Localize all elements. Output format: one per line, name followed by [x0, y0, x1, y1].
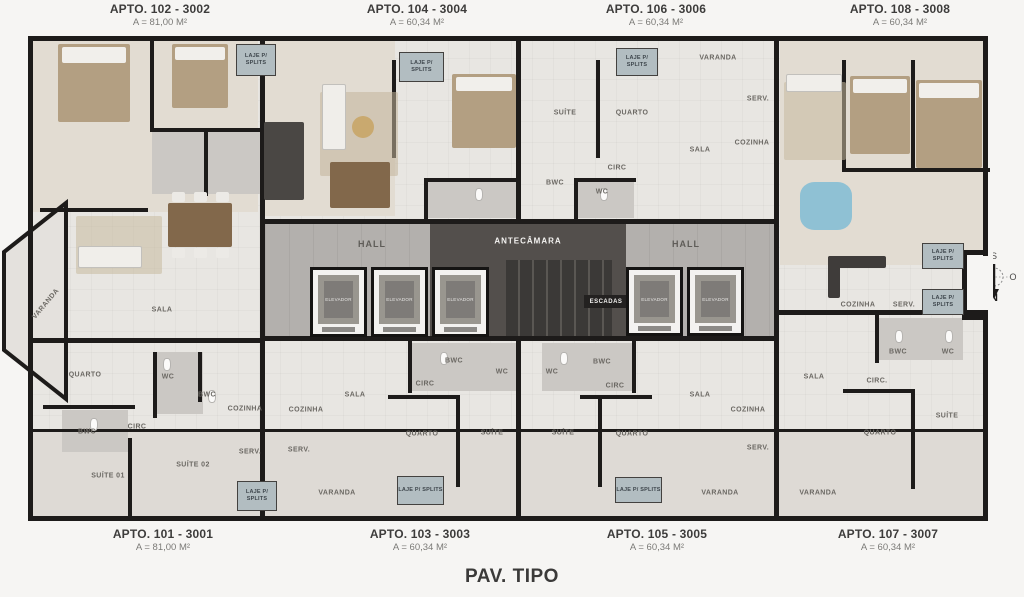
wall — [28, 516, 988, 521]
apartment-name: APTO. 104 - 3004 — [367, 2, 467, 16]
elevator-door — [699, 326, 732, 331]
wall — [456, 395, 460, 487]
wall — [843, 389, 915, 393]
furniture — [853, 79, 907, 93]
apartment-name: APTO. 102 - 3002 — [110, 2, 210, 16]
elevator-cab-inner: ELEVADOR — [385, 281, 414, 318]
room-label-cozinha: COZINHA — [735, 140, 770, 147]
room-label-circ: CIRC — [128, 424, 147, 431]
elevator-label: ELEVADOR — [641, 297, 668, 302]
room-label-serv-: SERV. — [747, 445, 769, 452]
furniture — [919, 83, 979, 98]
compass-o: O — [1009, 272, 1016, 282]
room-label-quarto: QUARTO — [616, 431, 649, 438]
furniture — [78, 246, 142, 268]
apartment-area: A = 81,00 M² — [113, 542, 213, 553]
wall — [580, 395, 652, 399]
wall — [28, 36, 988, 41]
furniture — [784, 82, 846, 160]
apartment-caption-bottom: APTO. 101 - 3001A = 81,00 M² — [113, 527, 213, 553]
furniture — [352, 116, 374, 138]
apartment-name: APTO. 108 - 3008 — [850, 2, 950, 16]
wall — [983, 314, 988, 521]
room-label-cozinha: COZINHA — [289, 407, 324, 414]
wall — [40, 208, 148, 212]
laje-splits-box: LAJE P/ SPLITS — [237, 481, 277, 511]
apartment-caption-top: APTO. 102 - 3002A = 81,00 M² — [110, 2, 210, 28]
wall — [596, 60, 600, 158]
apartment-area: A = 60,34 M² — [606, 17, 706, 28]
apartment-name: APTO. 105 - 3005 — [607, 527, 707, 541]
room-label-serv-: SERV. — [747, 96, 769, 103]
wall — [962, 250, 988, 255]
elevator: ELEVADOR — [310, 267, 367, 337]
apartment-caption-top: APTO. 104 - 3004A = 60,34 M² — [367, 2, 467, 28]
room-label-su-te: SUÍTE — [936, 413, 959, 420]
furniture — [456, 77, 512, 91]
elevator-cab-inner: ELEVADOR — [446, 281, 475, 318]
furniture — [62, 47, 126, 63]
apartment-name: APTO. 103 - 3003 — [370, 527, 470, 541]
room-label-circ: CIRC — [416, 381, 435, 388]
wall — [516, 36, 521, 223]
room-label-su-te-01: SUÍTE 01 — [91, 473, 125, 480]
wall — [983, 36, 988, 256]
wall — [424, 178, 520, 182]
furniture — [330, 162, 390, 208]
wall — [911, 60, 915, 172]
room-label-quarto: QUARTO — [864, 430, 897, 437]
room-label-su-te: SUÍTE — [481, 430, 504, 437]
room-label-varanda: VARANDA — [799, 490, 836, 497]
room-label-sala: SALA — [690, 147, 711, 154]
room-label-sala: SALA — [345, 392, 366, 399]
apartment-area: A = 60,34 M² — [838, 542, 938, 553]
elevator-door — [444, 327, 477, 332]
room-label-bwc: BWC — [78, 429, 96, 436]
bathroom-fixture — [945, 330, 953, 343]
varanda-strip — [30, 430, 986, 516]
room-label-bwc: BWC — [546, 180, 564, 187]
furniture — [786, 74, 842, 92]
wall — [260, 219, 779, 224]
room-label-quarto: QUARTO — [406, 431, 439, 438]
wall — [30, 429, 986, 432]
wall — [842, 168, 990, 172]
room-label-varanda: VARANDA — [699, 55, 736, 62]
room-label-circ-: CIRC. — [866, 378, 887, 385]
room-label-sala: SALA — [804, 374, 825, 381]
escadas-label: ESCADAS — [590, 299, 623, 305]
apartment-caption-bottom: APTO. 105 - 3005A = 60,34 M² — [607, 527, 707, 553]
room-label-circ: CIRC — [608, 165, 627, 172]
apartment-caption-bottom: APTO. 103 - 3003A = 60,34 M² — [370, 527, 470, 553]
apartment-caption-top: APTO. 106 - 3006A = 60,34 M² — [606, 2, 706, 28]
room-label-cozinha: COZINHA — [228, 406, 263, 413]
room-label-cozinha: COZINHA — [841, 302, 876, 309]
furniture — [194, 248, 207, 258]
room-label-serv-: SERV. — [893, 302, 915, 309]
apartment-name: APTO. 107 - 3007 — [838, 527, 938, 541]
elevator-label: ELEVADOR — [447, 297, 474, 302]
wall — [911, 389, 915, 489]
elevator-cab-inner: ELEVADOR — [701, 281, 730, 317]
room-label-varanda: VARANDA — [318, 490, 355, 497]
wall — [43, 405, 135, 409]
laje-splits-box: LAJE P/ SPLITS — [922, 289, 964, 315]
room-label-wc: WC — [546, 369, 558, 376]
laje-splits-box: LAJE P/ SPLITS — [397, 476, 444, 505]
antecamara-label: ANTECÂMARA — [494, 237, 561, 246]
room-label-wc: WC — [596, 189, 608, 196]
wall — [408, 341, 412, 393]
laje-splits-box: LAJE P/ SPLITS — [236, 44, 276, 76]
apartment-area: A = 60,34 M² — [850, 17, 950, 28]
wall — [204, 128, 208, 196]
furniture — [828, 256, 840, 298]
furniture — [216, 192, 229, 202]
wall — [424, 180, 428, 220]
elevator: ELEVADOR — [371, 267, 428, 337]
apartment-caption-top: APTO. 108 - 3008A = 60,34 M² — [850, 2, 950, 28]
furniture — [172, 248, 185, 258]
building-notch — [967, 252, 993, 316]
furniture — [800, 182, 852, 230]
bathroom-fixture — [895, 330, 903, 343]
furniture — [264, 122, 304, 200]
wall — [962, 315, 988, 320]
wall — [574, 178, 636, 182]
wall — [632, 341, 636, 393]
wall — [128, 438, 132, 518]
bathroom-fixture — [163, 358, 171, 371]
room-label-su-te: SUÍTE — [552, 430, 575, 437]
room-label-wc: WC — [162, 374, 174, 381]
apartment-area: A = 81,00 M² — [110, 17, 210, 28]
wall — [28, 36, 33, 521]
room-label-varanda: VARANDA — [701, 490, 738, 497]
apartment-name: APTO. 101 - 3001 — [113, 527, 213, 541]
room-label-quarto: QUARTO — [69, 372, 102, 379]
wall — [28, 338, 265, 343]
wall — [260, 219, 265, 341]
apartment-area: A = 60,34 M² — [370, 542, 470, 553]
wall — [774, 36, 779, 223]
elevator-door — [383, 327, 416, 332]
room-label-bwc: BWC — [889, 349, 907, 356]
elevator-cab-inner: ELEVADOR — [640, 281, 669, 317]
furniture — [216, 248, 229, 258]
room-label-bwc: BWC — [198, 392, 216, 399]
room-label-bwc: BWC — [593, 359, 611, 366]
room-label-serv-: SERV. — [288, 447, 310, 454]
wall — [574, 178, 578, 220]
wall — [774, 219, 779, 341]
elevator-label: ELEVADOR — [702, 297, 729, 302]
laje-splits-box: LAJE P/ SPLITS — [399, 52, 444, 82]
laje-splits-box: LAJE P/ SPLITS — [615, 477, 662, 503]
room-label-sala: SALA — [152, 307, 173, 314]
floor-plan-page: ESCADAS ANTECÂMARA S L O N PAV. TIPO ELE… — [0, 0, 1024, 597]
room-label-circ: CIRC — [606, 383, 625, 390]
room-label-cozinha: COZINHA — [731, 407, 766, 414]
bathroom-floor — [426, 180, 518, 218]
room-label-su-te: SUÍTE — [554, 110, 577, 117]
room-label-serv-: SERV. — [239, 449, 261, 456]
room-label-su-te-02: SUÍTE 02 — [176, 462, 210, 469]
apartment-name: APTO. 106 - 3006 — [606, 2, 706, 16]
stairs-label-box: ESCADAS — [584, 295, 628, 308]
furniture — [175, 47, 225, 60]
furniture — [168, 203, 232, 247]
elevator: ELEVADOR — [687, 267, 744, 336]
apartment-caption-bottom: APTO. 107 - 3007A = 60,34 M² — [838, 527, 938, 553]
room-label-wc: WC — [496, 369, 508, 376]
wall — [598, 399, 602, 487]
bathroom-fixture — [475, 188, 483, 201]
wall — [150, 36, 154, 128]
elevator-cab-inner: ELEVADOR — [324, 281, 353, 318]
hall-label: HALL — [358, 239, 386, 249]
apartment-area: A = 60,34 M² — [367, 17, 467, 28]
laje-splits-box: LAJE P/ SPLITS — [922, 243, 964, 269]
room-label-bwc: BWC — [445, 358, 463, 365]
elevator-door — [638, 326, 671, 331]
furniture — [322, 84, 346, 150]
room-label-wc: WC — [942, 349, 954, 356]
laje-splits-box: LAJE P/ SPLITS — [616, 48, 658, 76]
room-label-quarto: QUARTO — [616, 110, 649, 117]
furniture — [194, 192, 207, 202]
elevator: ELEVADOR — [626, 267, 683, 336]
elevator-door — [322, 327, 355, 332]
elevator: ELEVADOR — [432, 267, 489, 337]
apartment-area: A = 60,34 M² — [607, 542, 707, 553]
room-label-sala: SALA — [690, 392, 711, 399]
wall — [388, 395, 460, 399]
page-title: PAV. TIPO — [0, 566, 1024, 588]
elevator-label: ELEVADOR — [325, 297, 352, 302]
bathroom-fixture — [560, 352, 568, 365]
wall — [153, 352, 157, 418]
hall-label: HALL — [672, 239, 700, 249]
elevator-label: ELEVADOR — [386, 297, 413, 302]
wall — [875, 315, 879, 363]
furniture — [172, 192, 185, 202]
